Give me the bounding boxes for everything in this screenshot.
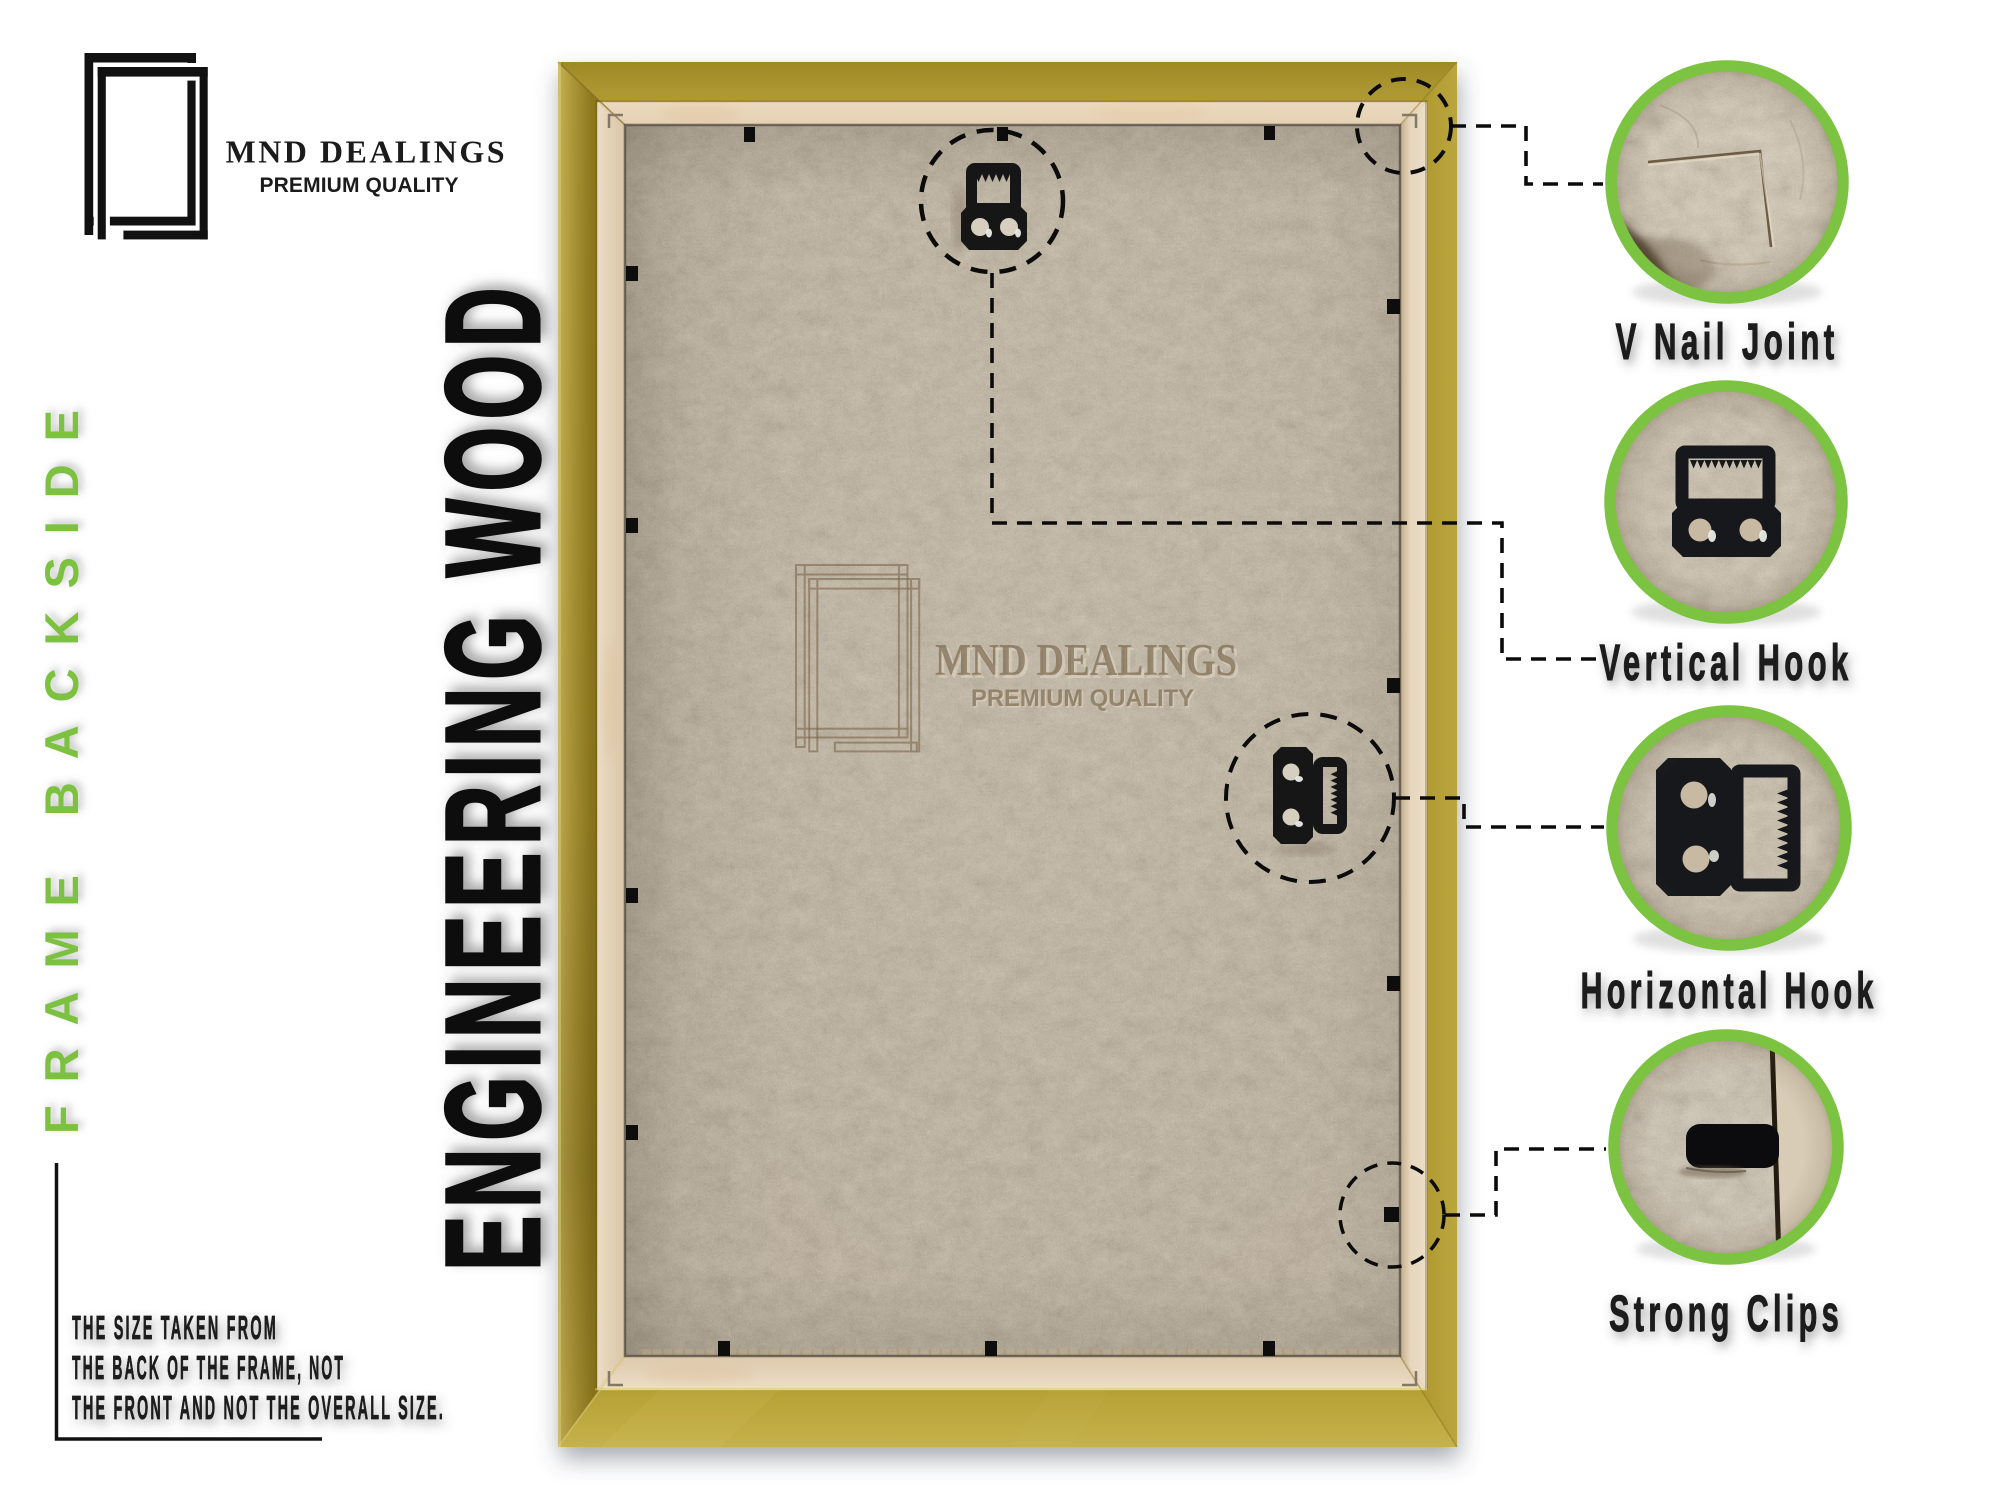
svg-text:MND DEALINGS: MND DEALINGS xyxy=(226,134,505,170)
svg-text:ENGINEERING WOOD: ENGINEERING WOOD xyxy=(419,280,568,1271)
svg-text:Strong Clips: Strong Clips xyxy=(1609,1285,1843,1342)
svg-text:PREMIUM QUALITY: PREMIUM QUALITY xyxy=(971,685,1194,712)
svg-text:MND DEALINGS: MND DEALINGS xyxy=(935,635,1237,685)
svg-text:Horizontal Hook: Horizontal Hook xyxy=(1581,962,1878,1019)
svg-text:THE FRONT AND NOT THE OVERALL: THE FRONT AND NOT THE OVERALL SIZE. xyxy=(72,1389,445,1426)
svg-text:Vertical Hook: Vertical Hook xyxy=(1600,634,1853,691)
svg-text:THE BACK OF THE FRAME, NOT: THE BACK OF THE FRAME, NOT xyxy=(72,1349,345,1386)
svg-text:V Nail Joint: V Nail Joint xyxy=(1616,313,1839,370)
svg-text:THE SIZE TAKEN FROM: THE SIZE TAKEN FROM xyxy=(72,1309,278,1346)
svg-text:PREMIUM QUALITY: PREMIUM QUALITY xyxy=(260,174,459,197)
